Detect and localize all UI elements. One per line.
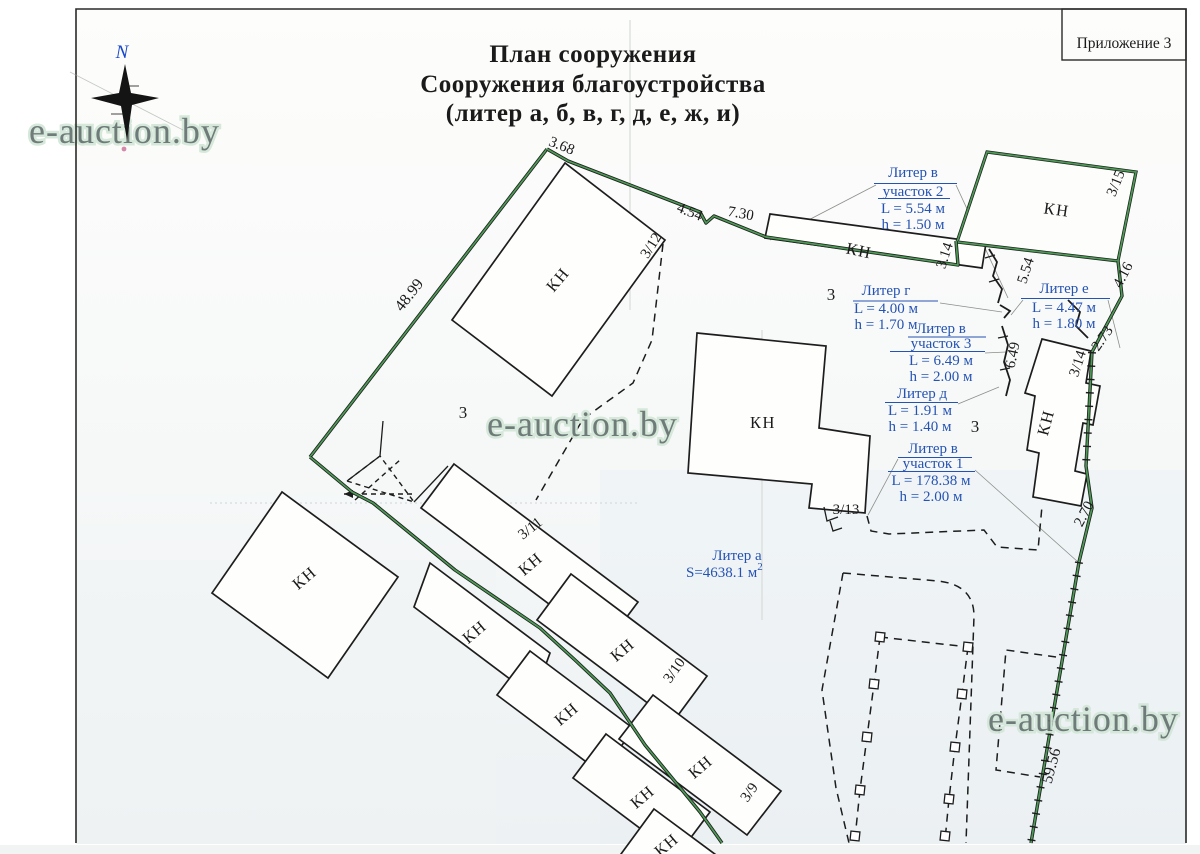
annotation-length: L = 1.91 м — [888, 403, 953, 419]
annotation-height: h = 2.00 м — [910, 369, 973, 385]
watermark-center: e-auction.by — [487, 404, 678, 444]
annotation-length: L = 4.47 м — [1032, 300, 1097, 316]
annotation-title: Литер в — [916, 321, 966, 337]
annotation-length: L = 6.49 м — [909, 353, 974, 369]
scan-edge — [0, 845, 1200, 854]
plan-drawing: КН КН КН КН КН КН КН КН КН КН КН КН КН 3… — [0, 0, 1200, 854]
kn-label-topright: КН — [1043, 198, 1071, 220]
mark-3-left: 3 — [459, 403, 468, 422]
annotation-height: h = 1.50 м — [882, 217, 945, 233]
annotation-liter-d: Литер д L = 1.91 м h = 1.40 м — [885, 386, 958, 435]
annotation-title: Литер в — [888, 165, 938, 181]
annotation-height: h = 1.70 м — [855, 317, 918, 333]
annotation-height: h = 1.40 м — [889, 419, 952, 435]
annotation-title: Литер в — [908, 441, 958, 457]
parcel-3-13: 3/13 — [833, 502, 860, 518]
annotation-title: Литер д — [897, 386, 948, 402]
annotation-subtitle: участок 1 — [903, 456, 964, 472]
annotation-title: Литер а — [712, 548, 762, 564]
mark-3-mid: 3 — [827, 285, 836, 304]
mark-3-right: 3 — [971, 417, 980, 436]
annotation-area-sup: 2 — [757, 561, 763, 573]
title-line-3: (литер а, б, в, г, д, е, ж, и) — [446, 100, 740, 127]
attachment-label: Приложение 3 — [1077, 35, 1172, 52]
title-line-2: Сооружения благоустройства — [420, 71, 766, 98]
annotation-height: h = 2.00 м — [900, 489, 963, 505]
annotation-subtitle: участок 3 — [911, 336, 972, 352]
kn-label-center: КН — [750, 413, 776, 432]
annotation-height: h = 1.80 м — [1033, 316, 1096, 332]
annotation-title: Литер г — [862, 283, 911, 299]
annotation-subtitle: участок 2 — [883, 184, 944, 200]
annotation-area-value: S=4638.1 м — [686, 565, 758, 581]
scanned-site-plan: КН КН КН КН КН КН КН КН КН КН КН КН КН 3… — [0, 0, 1200, 854]
watermark-bottomright: e-auction.by — [988, 699, 1179, 739]
annotation-length: L = 178.38 м — [891, 473, 971, 489]
annotation-title: Литер е — [1039, 281, 1089, 297]
annotation-length: L = 5.54 м — [881, 201, 946, 217]
annotation-length: L = 4.00 м — [854, 301, 919, 317]
title-line-1: План сооружения — [489, 41, 696, 68]
compass-dot — [122, 147, 127, 152]
compass-north-label: N — [115, 42, 130, 63]
